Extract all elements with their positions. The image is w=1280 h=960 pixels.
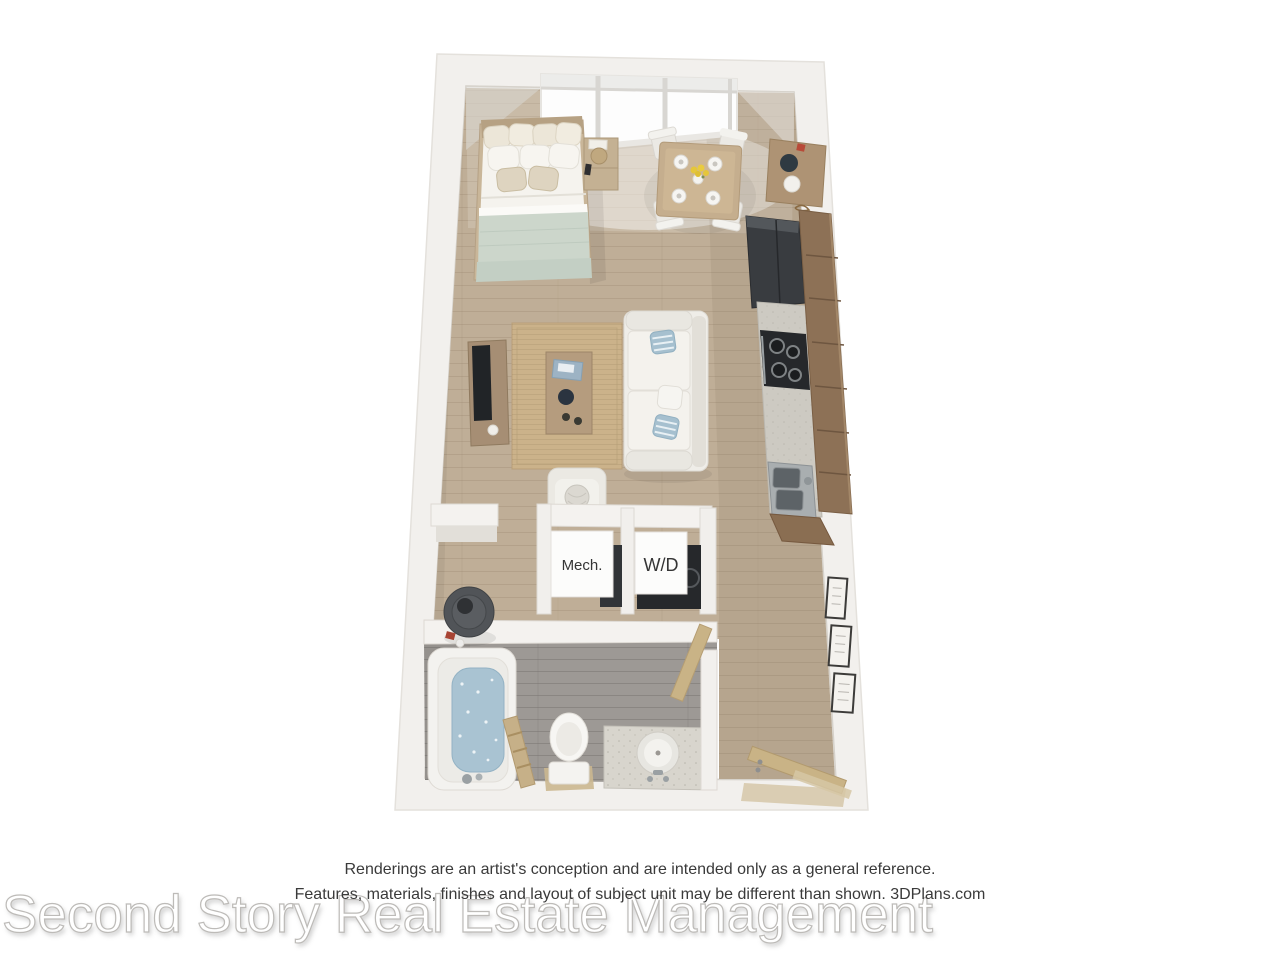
floor-plan-rendering: Mech. W/D bbox=[0, 0, 1280, 960]
washer-dryer-label: W/D bbox=[644, 555, 679, 575]
vanity-faucet bbox=[653, 770, 663, 775]
water-heater bbox=[444, 587, 496, 647]
floor-plan-page: Mech. W/D bbox=[0, 0, 1280, 960]
sphere-decor bbox=[784, 176, 800, 192]
coffee-table bbox=[546, 352, 592, 434]
bathroom-wall bbox=[701, 650, 717, 790]
vase bbox=[558, 389, 574, 405]
kitchen-sink bbox=[768, 462, 816, 518]
wall-shelf bbox=[436, 526, 497, 542]
nightstand bbox=[584, 138, 618, 190]
disclaimer-line1: Renderings are an artist's conception an… bbox=[0, 860, 1280, 880]
faucet bbox=[804, 477, 812, 485]
pot-decor bbox=[780, 154, 798, 172]
refrigerator bbox=[746, 216, 805, 308]
bathtub bbox=[428, 648, 516, 790]
tub-faucet bbox=[462, 774, 472, 784]
basket bbox=[591, 148, 607, 164]
vanity-sink bbox=[604, 726, 712, 790]
sofa bbox=[624, 311, 712, 483]
mech-label: Mech. bbox=[562, 557, 603, 574]
disclaimer-line2: Features, materials, finishes and layout… bbox=[0, 885, 1280, 905]
tv-stand bbox=[468, 340, 509, 446]
stove bbox=[760, 330, 810, 390]
tall-cabinet bbox=[766, 139, 826, 211]
tv bbox=[472, 345, 492, 421]
